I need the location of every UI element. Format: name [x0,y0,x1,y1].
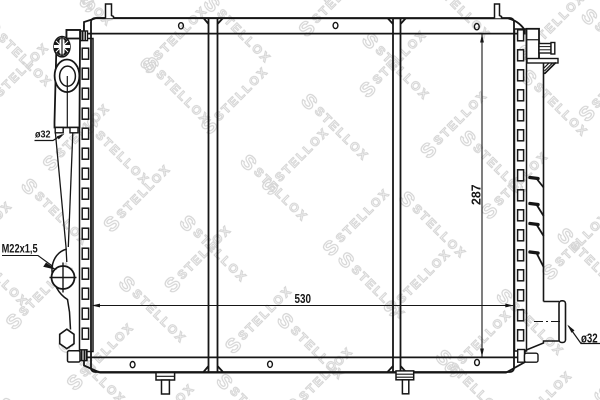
svg-text:530: 530 [295,292,312,306]
svg-text:287: 287 [469,184,483,205]
svg-text:M22x1,5: M22x1,5 [2,242,38,256]
svg-text:ø32: ø32 [35,129,51,141]
